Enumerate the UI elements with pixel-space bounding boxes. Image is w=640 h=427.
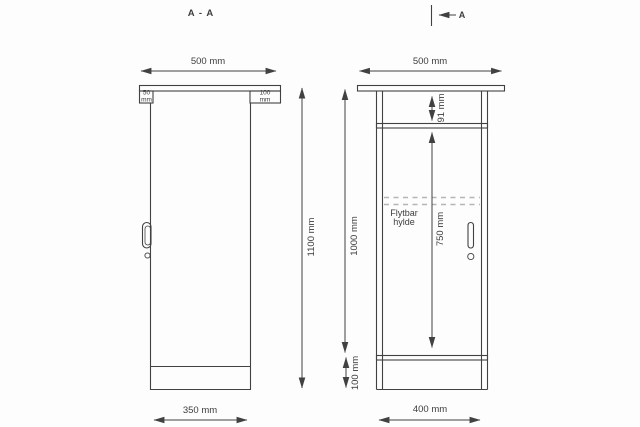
section-letter-label: A (459, 10, 466, 20)
dim-label-width-500-right: 500 mm (413, 57, 447, 67)
dim-label-plinth-100: 100 mm (351, 356, 361, 390)
top-rail (377, 124, 488, 129)
section-dimensions-group (141, 71, 302, 420)
dim-label-width-500-left: 500 mm (191, 57, 225, 67)
lock-circle-section (145, 253, 150, 258)
dim-label-height-1000: 1000 mm (350, 216, 360, 256)
drawing-page: A - A A 500 mm 50 mm 100 mm 1100 mm 350 … (0, 0, 640, 427)
handle-slot-front (468, 223, 474, 249)
handle-profile-inner (145, 226, 151, 245)
dim-label-depth-350: 350 mm (183, 406, 217, 416)
dim-label-gap-91: 91 mm (437, 93, 447, 122)
dim-label-height-1100: 1100 mm (307, 218, 317, 257)
dim-label-width-400: 400 mm (413, 405, 447, 415)
section-view-group (140, 86, 281, 390)
view-title-aa: A - A (188, 9, 214, 19)
bottom-rail (377, 356, 488, 361)
lock-circle-front (468, 253, 474, 259)
dim-label-shelf-750: 750 mm (436, 212, 446, 246)
shelf-label-flytbar-hylde: Flytbar hylde (390, 209, 418, 227)
countertop-front (358, 86, 505, 92)
cabinet-body-section (151, 103, 251, 390)
dim-label-overhang-50: 50 mm (140, 91, 154, 104)
drawing-canvas (0, 0, 640, 427)
front-dimensions-group (345, 15, 502, 420)
dim-label-overhang-100: 100 mm (255, 91, 275, 104)
